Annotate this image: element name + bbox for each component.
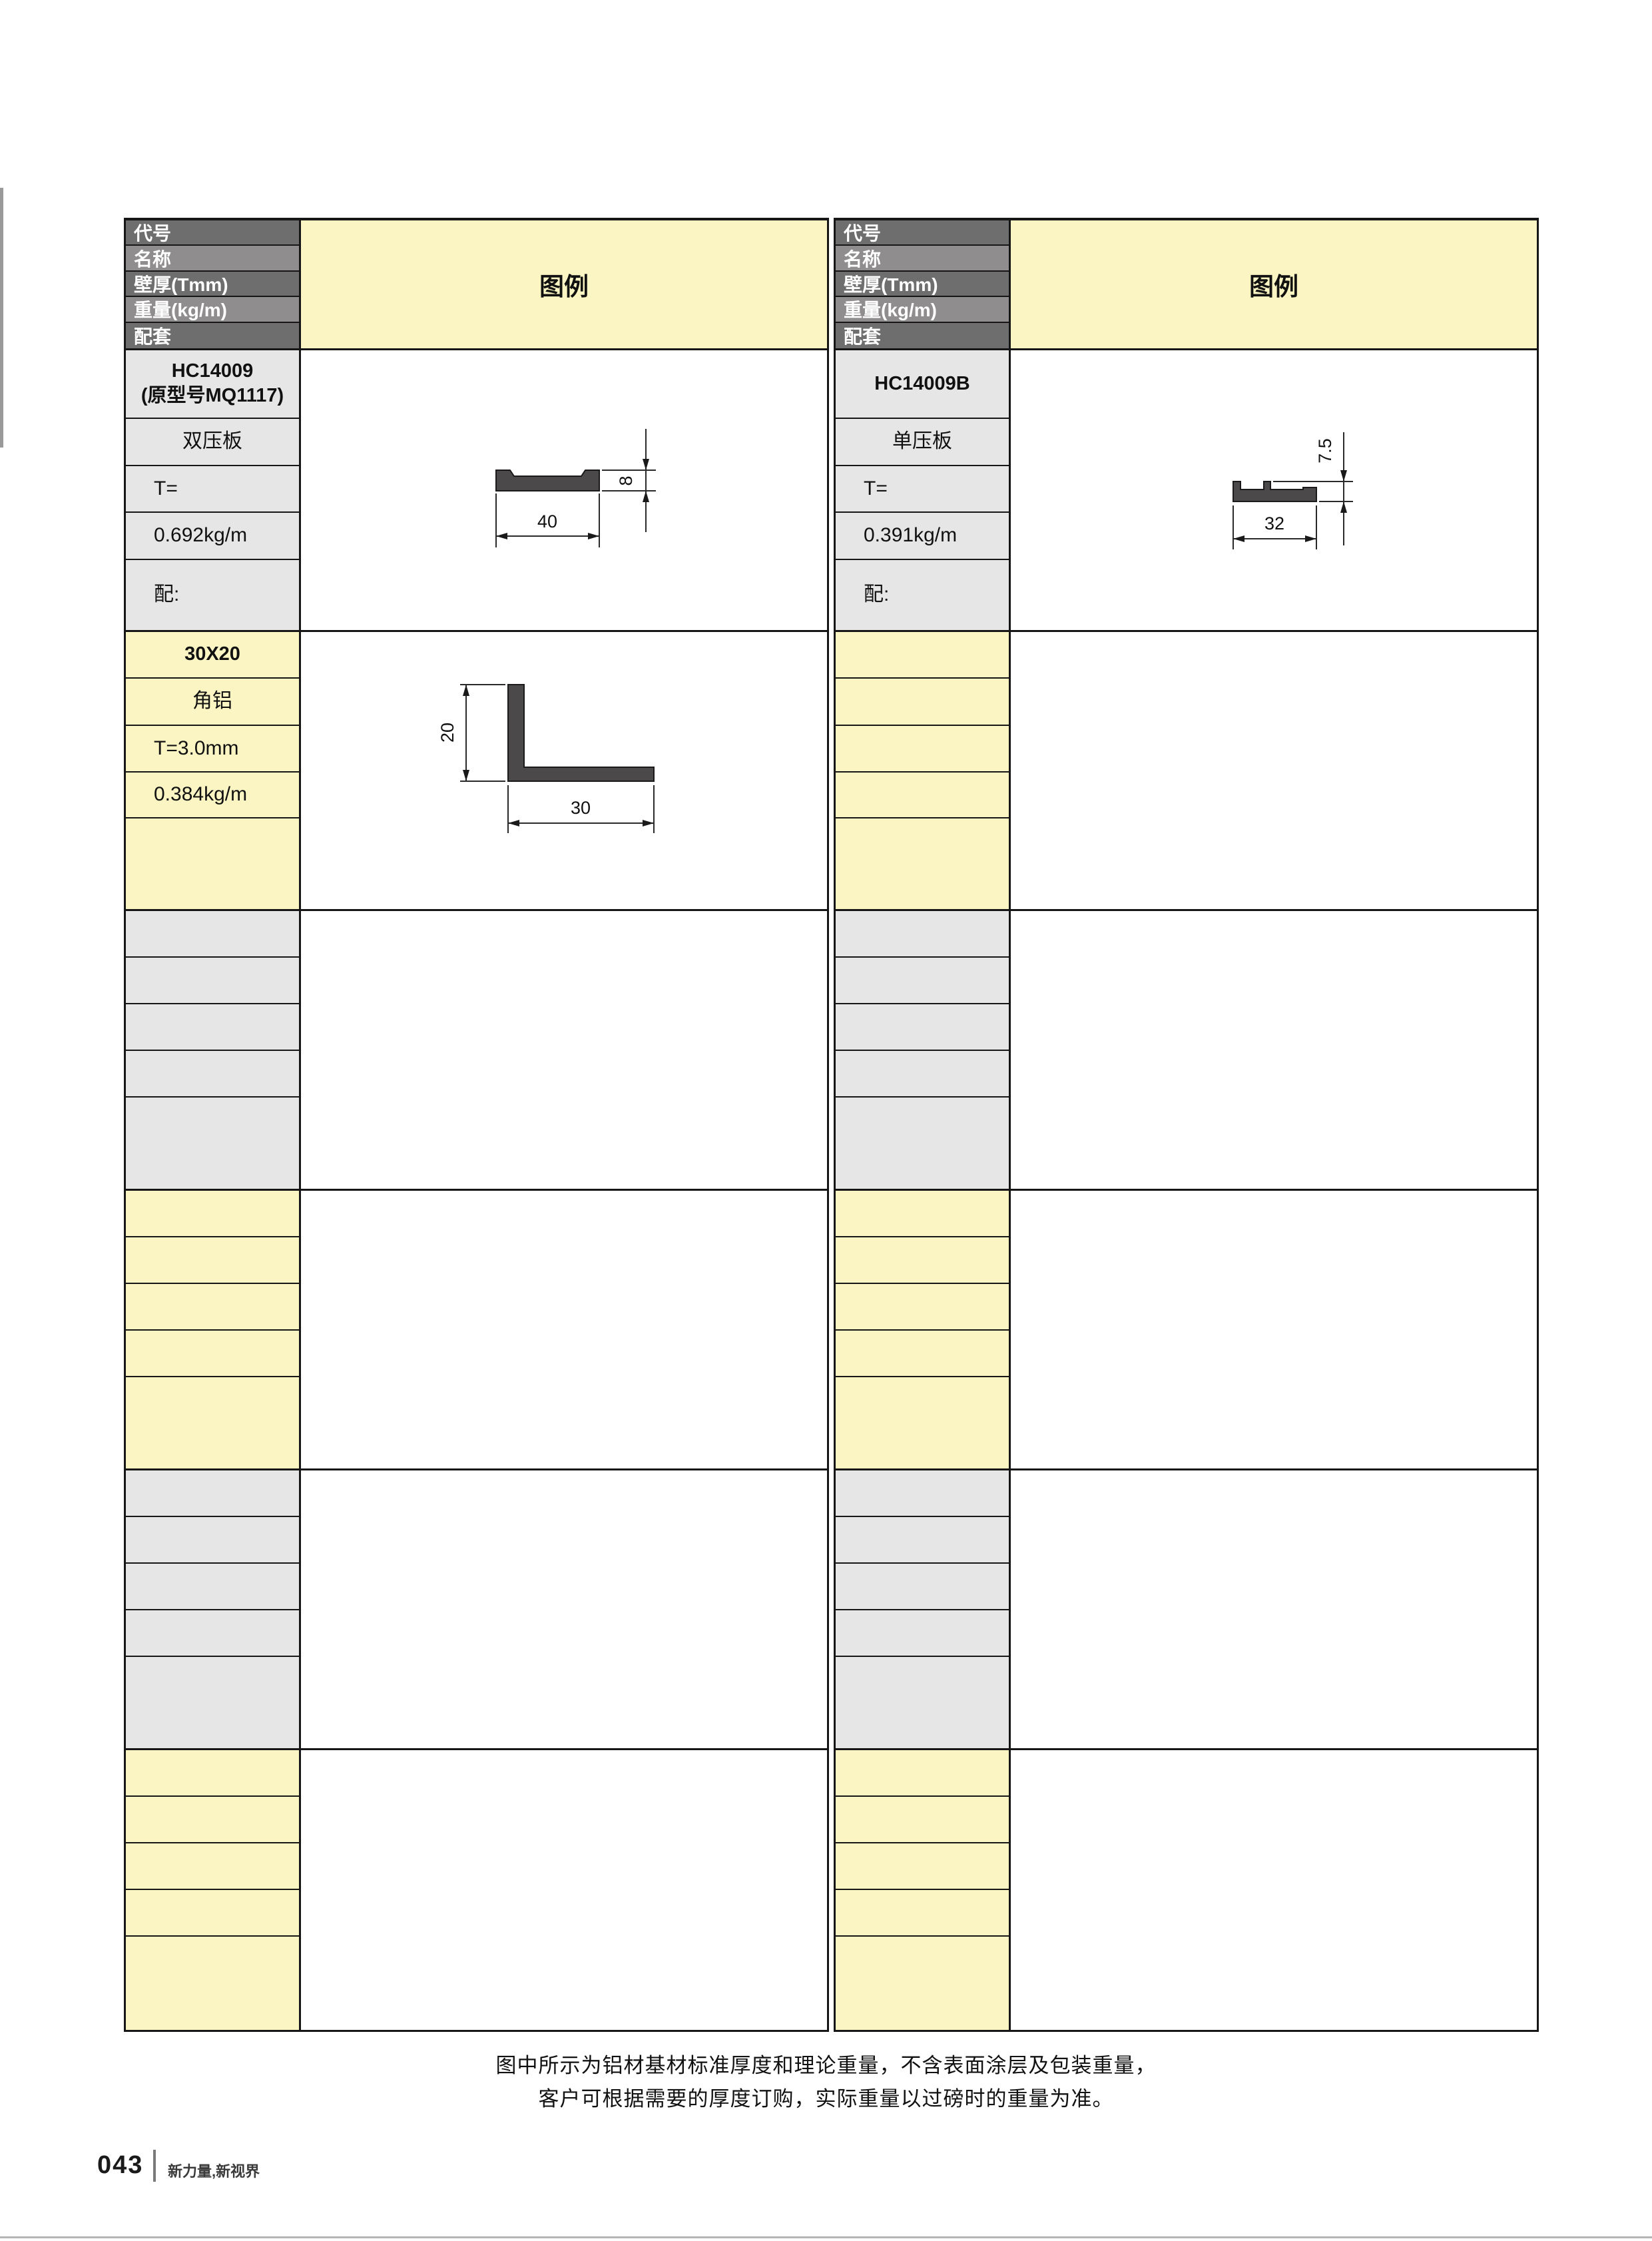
brand-tagline: 新力量,新视界 — [168, 2160, 260, 2181]
empty-cell — [836, 1377, 1009, 1468]
empty-cell — [836, 632, 1009, 679]
spine-edge-strip — [0, 188, 3, 448]
label-column — [836, 1470, 1009, 1748]
label-column — [126, 1750, 299, 2030]
empty-cell — [836, 1098, 1009, 1189]
empty-cell — [836, 1517, 1009, 1564]
empty-cell — [126, 1377, 299, 1468]
catalog-page: 代号 名称 壁厚(Tmm) 重量(kg/m) 配套 图例 HC14009 (原型… — [0, 0, 1652, 2241]
legend-title: 图例 — [1249, 266, 1298, 302]
dim-label-height: 8 — [616, 476, 636, 485]
empty-cell — [126, 1237, 299, 1284]
empty-product-group — [126, 1470, 827, 1750]
header-cell-match: 配套 — [126, 323, 299, 348]
legend-header-cell: 图例 — [1009, 220, 1537, 348]
angle-profile-drawing: 20 30 — [301, 632, 827, 909]
label-column — [836, 1191, 1009, 1468]
table-header-right: 代号 名称 壁厚(Tmm) 重量(kg/m) 配套 图例 — [836, 220, 1537, 350]
header-cell-match: 配套 — [836, 323, 1009, 348]
thickness-cell: T= — [836, 466, 1009, 513]
empty-cell — [126, 1517, 299, 1564]
empty-cell — [836, 773, 1009, 818]
dim-label-width: 30 — [571, 798, 591, 818]
legend-title: 图例 — [539, 266, 589, 302]
weight-cell: 0.692kg/m — [126, 513, 299, 560]
header-cell-thickness: 壁厚(Tmm) — [836, 272, 1009, 297]
dim-label-width: 40 — [537, 511, 557, 531]
empty-product-group — [836, 1191, 1537, 1470]
empty-cell — [126, 1004, 299, 1051]
code-cell: 30X20 — [126, 632, 299, 679]
empty-cell — [836, 1657, 1009, 1748]
label-column — [126, 911, 299, 1189]
page-bottom-edge — [0, 2236, 1652, 2238]
empty-cell — [126, 1937, 299, 2030]
empty-cell — [126, 1797, 299, 1843]
empty-cell — [836, 1331, 1009, 1377]
empty-diagram-cell — [1009, 1750, 1537, 2030]
empty-cell — [126, 1191, 299, 1237]
profile-table-right: 代号 名称 壁厚(Tmm) 重量(kg/m) 配套 图例 HC14009B 单压… — [834, 218, 1539, 2032]
dim-label-height: 20 — [437, 723, 457, 743]
empty-product-group — [836, 1470, 1537, 1750]
empty-cell — [836, 1750, 1009, 1797]
header-label-column: 代号 名称 壁厚(Tmm) 重量(kg/m) 配套 — [836, 220, 1009, 348]
empty-product-group — [126, 1191, 827, 1470]
empty-product-group — [836, 911, 1537, 1191]
empty-product-group — [126, 1750, 827, 2030]
empty-cell — [836, 818, 1009, 909]
header-cell-thickness: 壁厚(Tmm) — [126, 272, 299, 297]
label-column — [836, 1750, 1009, 2030]
empty-cell — [126, 818, 299, 909]
label-column — [126, 1191, 299, 1468]
thickness-cell: T=3.0mm — [126, 726, 299, 773]
footer-note-line1: 图中所示为铝材基材标准厚度和理论重量，不含表面涂层及包装重量， — [0, 2049, 1652, 2079]
code-line2: (原型号MQ1117) — [141, 384, 284, 408]
empty-diagram-cell — [1009, 1470, 1537, 1748]
empty-cell — [126, 911, 299, 958]
empty-cell — [836, 1004, 1009, 1051]
empty-diagram-cell — [299, 1750, 827, 2030]
empty-product-group — [836, 1750, 1537, 2030]
empty-diagram-cell — [299, 1470, 827, 1748]
empty-cell — [126, 1843, 299, 1890]
weight-cell: 0.391kg/m — [836, 513, 1009, 560]
empty-diagram-cell — [1009, 632, 1537, 909]
empty-product-group — [126, 911, 827, 1191]
legend-header-cell: 图例 — [299, 220, 827, 348]
footer-note-line2: 客户可根据需要的厚度订购，实际重量以过磅时的重量为准。 — [0, 2082, 1652, 2112]
empty-cell — [836, 1843, 1009, 1890]
empty-cell — [836, 679, 1009, 726]
empty-cell — [836, 1051, 1009, 1098]
empty-cell — [836, 958, 1009, 1004]
empty-cell — [126, 1284, 299, 1331]
product-group-hc14009: HC14009 (原型号MQ1117) 双压板 T= 0.692kg/m 配: … — [126, 350, 827, 632]
code-line1: HC14009 — [172, 359, 254, 384]
code-cell: HC14009 (原型号MQ1117) — [126, 350, 299, 419]
empty-cell — [836, 1191, 1009, 1237]
profile-table-left: 代号 名称 壁厚(Tmm) 重量(kg/m) 配套 图例 HC14009 (原型… — [124, 218, 829, 2032]
empty-cell — [126, 1098, 299, 1189]
empty-cell — [836, 1797, 1009, 1843]
page-number: 043 — [97, 2151, 143, 2180]
match-cell: 配: — [836, 560, 1009, 630]
table-header-left: 代号 名称 壁厚(Tmm) 重量(kg/m) 配套 图例 — [126, 220, 827, 350]
header-cell-code: 代号 — [836, 220, 1009, 246]
profile-diagram-30x20: 20 30 — [299, 632, 827, 909]
empty-cell — [836, 1237, 1009, 1284]
empty-cell — [126, 958, 299, 1004]
header-cell-weight: 重量(kg/m) — [126, 297, 299, 322]
dim-label-height: 7.5 — [1315, 438, 1335, 464]
double-press-plate-drawing: 40 8 — [301, 350, 827, 630]
empty-cell — [126, 1051, 299, 1098]
single-press-plate-drawing: 7.5 32 — [1011, 350, 1537, 630]
empty-product-group — [836, 632, 1537, 911]
empty-diagram-cell — [1009, 911, 1537, 1189]
label-column — [836, 911, 1009, 1189]
empty-cell — [836, 1610, 1009, 1657]
empty-cell — [126, 1331, 299, 1377]
name-cell: 角铝 — [126, 679, 299, 726]
dim-label-width: 32 — [1264, 513, 1284, 533]
label-column — [126, 1470, 299, 1748]
empty-cell — [836, 726, 1009, 773]
empty-cell — [836, 1937, 1009, 2030]
empty-cell — [126, 1564, 299, 1610]
name-cell: 单压板 — [836, 419, 1009, 466]
empty-cell — [836, 1564, 1009, 1610]
label-column — [836, 632, 1009, 909]
header-cell-code: 代号 — [126, 220, 299, 246]
profile-diagram-hc14009b: 7.5 32 — [1009, 350, 1537, 630]
label-column: HC14009B 单压板 T= 0.391kg/m 配: — [836, 350, 1009, 630]
empty-cell — [126, 1470, 299, 1517]
empty-cell — [126, 1750, 299, 1797]
label-column: 30X20 角铝 T=3.0mm 0.384kg/m — [126, 632, 299, 909]
empty-diagram-cell — [299, 1191, 827, 1468]
thickness-cell: T= — [126, 466, 299, 513]
empty-diagram-cell — [299, 911, 827, 1189]
empty-cell — [126, 1657, 299, 1748]
footer-separator — [153, 2150, 156, 2182]
empty-cell — [126, 1610, 299, 1657]
empty-cell — [836, 911, 1009, 958]
match-cell: 配: — [126, 560, 299, 630]
header-cell-name: 名称 — [836, 246, 1009, 271]
profile-diagram-hc14009: 40 8 — [299, 350, 827, 630]
empty-cell — [836, 1284, 1009, 1331]
product-group-hc14009b: HC14009B 单压板 T= 0.391kg/m 配: 7.5 — [836, 350, 1537, 632]
header-cell-name: 名称 — [126, 246, 299, 271]
empty-cell — [836, 1470, 1009, 1517]
name-cell: 双压板 — [126, 419, 299, 466]
label-column: HC14009 (原型号MQ1117) 双压板 T= 0.692kg/m 配: — [126, 350, 299, 630]
product-group-30x20: 30X20 角铝 T=3.0mm 0.384kg/m 20 — [126, 632, 827, 911]
empty-cell — [836, 1890, 1009, 1937]
empty-cell — [126, 1890, 299, 1937]
header-label-column: 代号 名称 壁厚(Tmm) 重量(kg/m) 配套 — [126, 220, 299, 348]
weight-cell: 0.384kg/m — [126, 773, 299, 818]
code-cell: HC14009B — [836, 350, 1009, 419]
empty-diagram-cell — [1009, 1191, 1537, 1468]
header-cell-weight: 重量(kg/m) — [836, 297, 1009, 322]
